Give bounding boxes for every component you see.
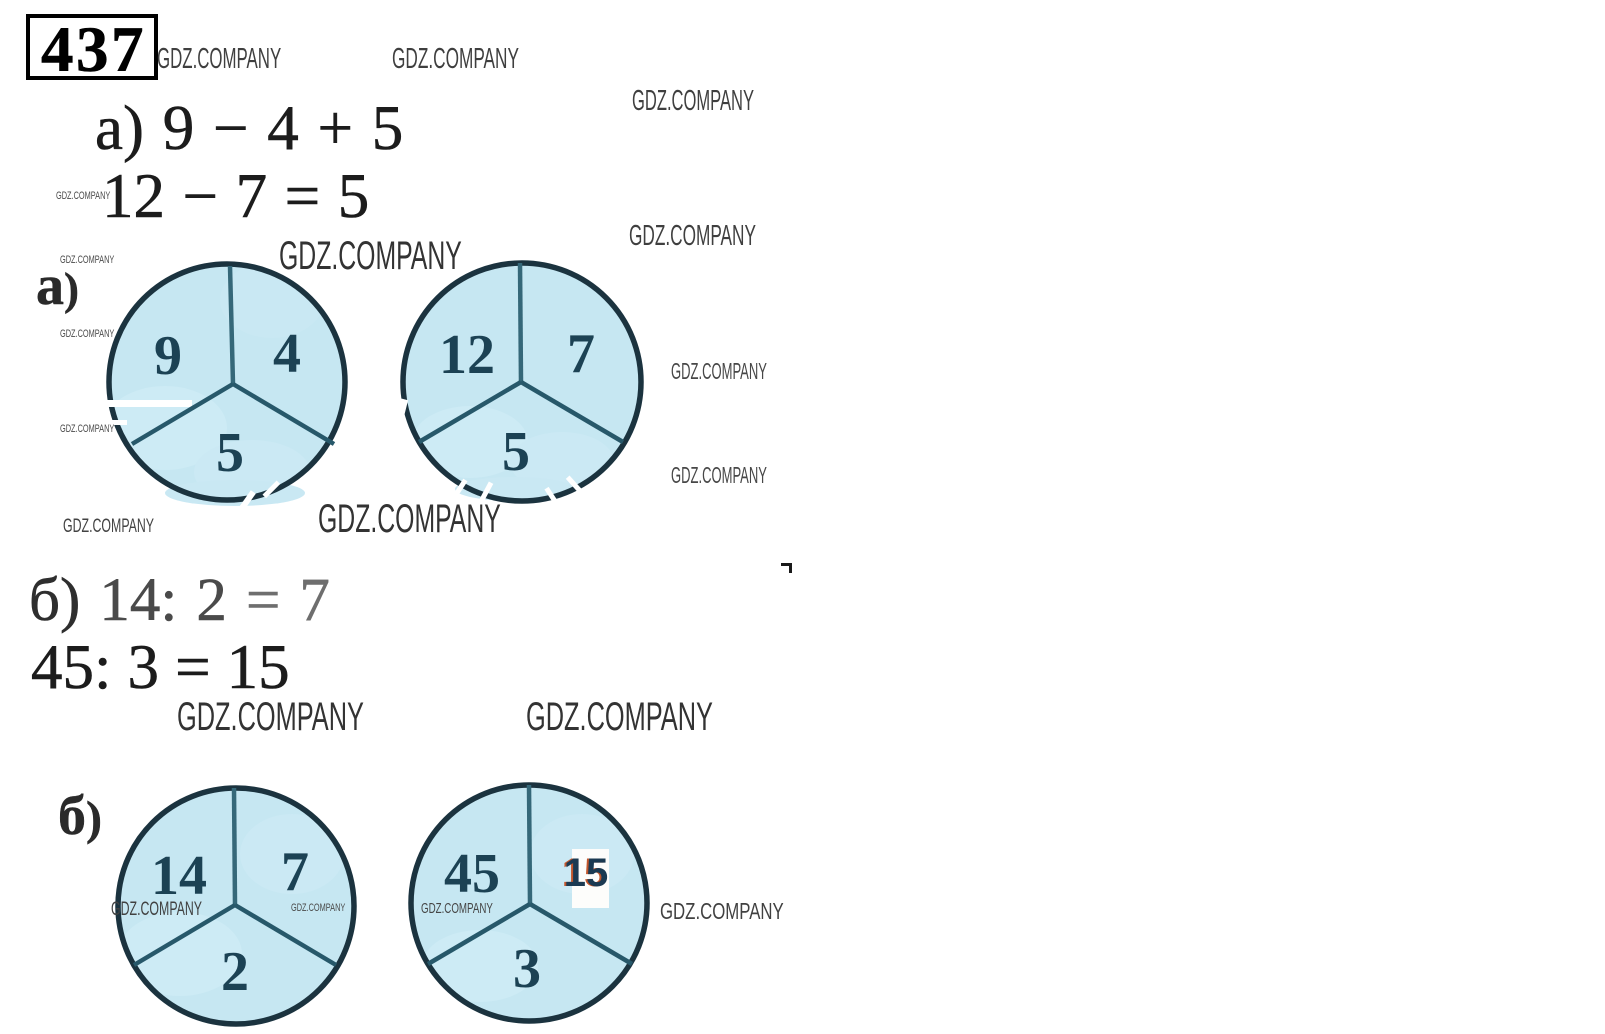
svg-text:5: 5 [502, 421, 530, 483]
svg-text:12: 12 [439, 324, 495, 386]
svg-text:3: 3 [513, 938, 541, 1000]
svg-text:9: 9 [154, 325, 182, 387]
svg-text:4: 4 [273, 323, 301, 385]
svg-text:45: 45 [444, 843, 500, 905]
svg-text:2: 2 [221, 941, 249, 1003]
svg-text:5: 5 [216, 422, 244, 484]
svg-text:7: 7 [281, 841, 309, 903]
svg-text:7: 7 [567, 323, 595, 385]
svg-text:14: 14 [151, 845, 207, 907]
svg-text:15: 15 [564, 851, 609, 895]
